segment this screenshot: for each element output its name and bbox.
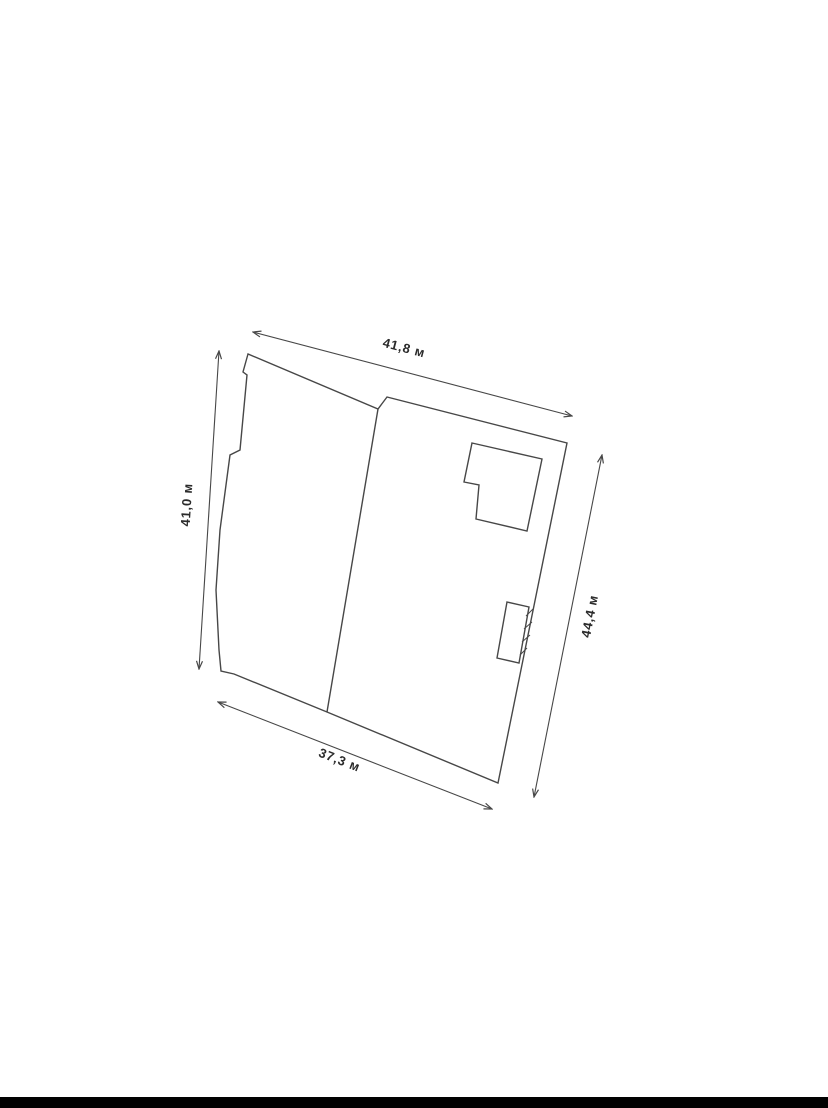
dimension-left-label: 41,0 м	[178, 483, 196, 527]
building-main	[464, 443, 542, 531]
dimension-top-label: 41,8 м	[381, 335, 427, 361]
dimension-bottom	[218, 702, 492, 809]
site-plan: 41,8 м41,0 м44,4 м37,3 м	[0, 0, 828, 1108]
dimension-left	[199, 351, 219, 669]
divider-line	[327, 409, 378, 712]
dimension-right-label: 44,4 м	[578, 593, 601, 638]
plan-shapes	[216, 354, 567, 783]
letterbox-bar	[0, 1097, 828, 1108]
parcel-outline	[216, 354, 567, 783]
canvas: 41,8 м41,0 м44,4 м37,3 м	[0, 0, 828, 1108]
